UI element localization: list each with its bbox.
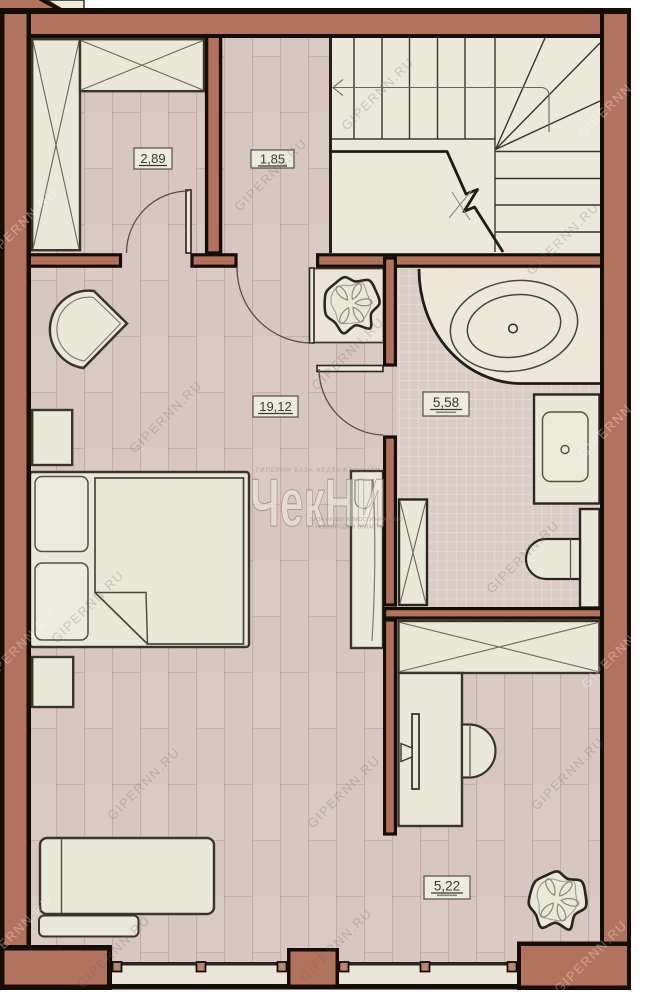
svg-text:БАЗА НЕДВИЖИМОСТИ НИЖНЕГО: БАЗА НЕДВИЖИМОСТИ НИЖНЕГО [310,517,403,523]
svg-text:НОВГОРОДА И ОБЛАСТИ: НОВГОРОДА И ОБЛАСТИ [316,525,383,531]
svg-text:2,89: 2,89 [140,151,165,166]
svg-text:5,22: 5,22 [434,879,460,894]
svg-text:ГИПЕРНН БАЗА НЕДВИЖИМОСТИ: ГИПЕРНН БАЗА НЕДВИЖИМОСТИ [256,468,381,474]
svg-text:19,12: 19,12 [259,399,292,414]
svg-text:5,58: 5,58 [433,395,459,410]
